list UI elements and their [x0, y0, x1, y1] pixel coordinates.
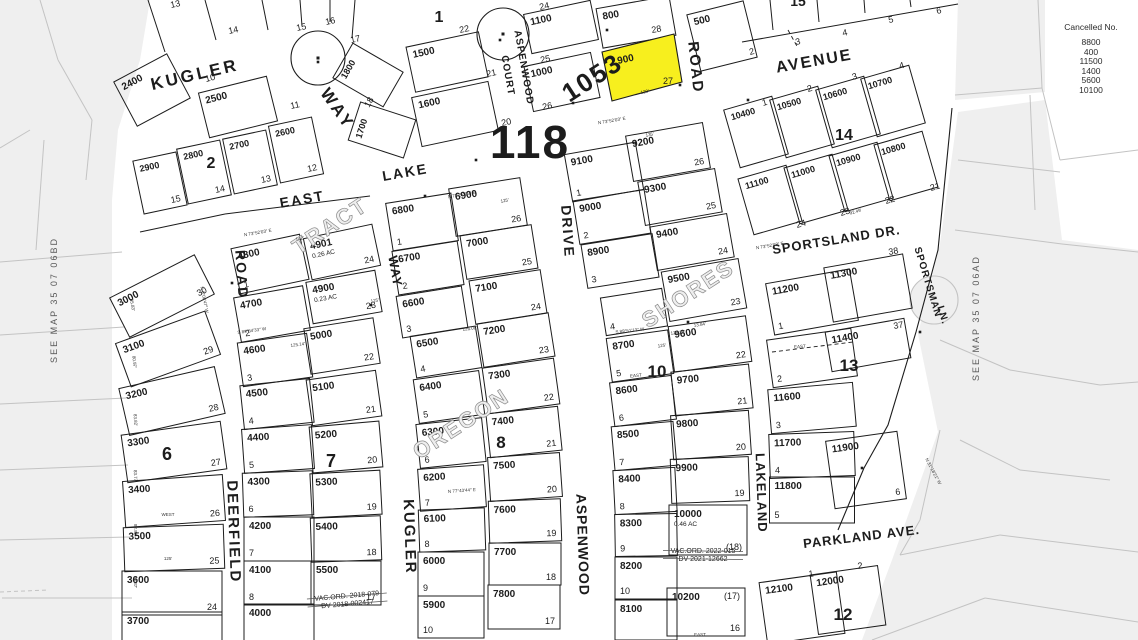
parcel-boundary — [469, 270, 547, 325]
lot-number: 4 — [775, 465, 780, 475]
parcel-7600[interactable]: 760019 — [488, 499, 561, 543]
bearing-label: N 73°52'03″ E — [598, 116, 626, 126]
survey-point-dot — [231, 282, 234, 285]
parcel-4200[interactable]: 42007 — [244, 517, 314, 561]
lot-number: 9 — [620, 543, 625, 553]
parcel-number: 9700 — [676, 373, 700, 386]
survey-point-dot — [606, 29, 609, 32]
lot-number: 27 — [663, 76, 673, 86]
parcel-9900[interactable]: 990019 — [670, 457, 749, 504]
strike-line — [663, 559, 743, 560]
lot-number: 15 — [170, 193, 182, 205]
lot-number: 16 — [730, 623, 740, 633]
survey-point-dot — [317, 57, 320, 60]
lot-number: 1 — [575, 187, 582, 198]
boundary-line — [770, 0, 773, 30]
bearing-label: 125' — [500, 197, 509, 203]
parcel-number: 6600 — [402, 296, 426, 310]
parcel-boundary — [306, 370, 382, 425]
lot-number: 10 — [620, 586, 630, 596]
boundary-line — [864, 0, 865, 13]
parcel-number: 1600 — [417, 96, 441, 111]
parcel-1100[interactable]: 1100 — [524, 0, 599, 53]
parcel-6000[interactable]: 60009 — [418, 552, 484, 596]
lot-number: 13 — [169, 0, 181, 10]
boundary-line — [205, 0, 216, 40]
parcel-number: 9900 — [675, 462, 698, 474]
bearing-label: WEST — [162, 512, 175, 517]
parcel-number: 5200 — [314, 429, 338, 442]
survey-point-dot — [502, 33, 505, 36]
lot-number: 3 — [247, 372, 253, 383]
lot-number: 22 — [735, 349, 746, 360]
street-label-avenue: AVENUE — [775, 46, 854, 76]
lot-number: 9 — [423, 583, 428, 593]
parcel-number: 2900 — [139, 160, 161, 174]
parcel-number: 7400 — [491, 415, 515, 428]
street-label-lakeland: LAKELAND — [753, 453, 771, 533]
parcel-1700[interactable]: 1700 — [348, 102, 416, 158]
parcel-number: 3000 — [116, 289, 141, 309]
parcel-number: 8700 — [612, 339, 636, 353]
parcel-number: 2800 — [182, 148, 204, 162]
parcel-number: 12100 — [765, 582, 795, 597]
parcel-number: 4600 — [243, 343, 267, 357]
street-label-drive: DRIVE — [558, 205, 578, 259]
parcel-4100[interactable]: 41008 — [244, 561, 314, 605]
survey-point-dot — [317, 61, 320, 64]
parcel-number: 1000 — [530, 65, 554, 80]
block-number: 6 — [162, 444, 172, 464]
lot-number: 11 — [289, 99, 300, 111]
parcel-number: 9400 — [655, 226, 679, 241]
parcel-number: 2700 — [228, 138, 250, 152]
lot-number: 10 — [423, 625, 433, 635]
bearing-label: 125.14' — [290, 341, 305, 348]
lot-number: 24 — [530, 301, 541, 312]
parcel-6500[interactable]: 65004 — [410, 326, 482, 378]
parcel-boundary — [198, 76, 277, 138]
block-number: 15 — [790, 0, 806, 9]
survey-point-dot — [475, 159, 478, 162]
parcel-number: 5300 — [315, 476, 338, 488]
block-number: 13 — [840, 356, 859, 375]
survey-point-dot — [679, 84, 682, 87]
parcel-number: 4200 — [249, 521, 272, 532]
parcel-number: 10700 — [867, 75, 894, 92]
parcel-boundary — [824, 254, 912, 322]
lot-number: 6 — [618, 412, 624, 423]
bearing-label: 126.08' — [462, 325, 477, 332]
parcel-boundary — [304, 318, 380, 374]
lot-number: 1 — [761, 97, 769, 108]
lot-number: 3 — [591, 274, 598, 285]
parcel-5400[interactable]: 540018 — [310, 516, 381, 562]
parcel-number: 2500 — [204, 90, 229, 106]
parcel-2500[interactable]: 2500 — [198, 76, 277, 138]
parcel-7000[interactable]: 700025 — [460, 225, 538, 280]
block-number: 1 — [435, 9, 444, 26]
parcel-number: 11200 — [771, 282, 800, 298]
lot-number: 22 — [884, 194, 896, 206]
lot-number: 7 — [619, 457, 625, 467]
lot-number: 25 — [539, 53, 551, 65]
lot-number: 1 — [808, 568, 814, 579]
parcel-number: 10000 — [674, 509, 702, 520]
lot-number: 19 — [546, 528, 556, 538]
lot-number: 24 — [538, 0, 550, 12]
boundary-line — [910, 0, 911, 7]
lot-number: 27 — [210, 457, 221, 468]
lot-number: 38 — [888, 245, 900, 257]
lot-number: 21 — [546, 438, 557, 449]
lot-number: 25 — [705, 200, 717, 212]
parcel-number: 3400 — [128, 484, 151, 497]
block-number: 7 — [326, 451, 336, 471]
lot-number: 2 — [806, 83, 814, 94]
parcel-number: 6500 — [416, 336, 440, 350]
lot-number: 18 — [546, 572, 556, 582]
parcel-area: 0.46 AC — [674, 521, 697, 528]
parcel-number: 9800 — [676, 418, 699, 431]
parcel-5000[interactable]: 500022 — [304, 318, 380, 374]
parcel-number: 6400 — [419, 380, 443, 394]
parcel-boundary — [668, 316, 752, 372]
lot-number: 4 — [898, 60, 906, 71]
parcel-boundary — [268, 117, 323, 183]
bearing-label: 83.82' — [133, 414, 139, 427]
parcel-number: 8400 — [618, 473, 641, 485]
parcel-number: 7000 — [466, 236, 490, 250]
parcel-boundary — [626, 123, 711, 182]
lot-number: 21 — [929, 181, 941, 193]
lot-number: 6 — [895, 486, 901, 497]
lot-number: 24 — [717, 245, 729, 257]
survey-point-dot — [572, 102, 575, 105]
street-label-road: ROAD — [684, 41, 706, 95]
lot-number: 5 — [775, 510, 780, 520]
parcel-number: 11100 — [744, 175, 770, 191]
lot-number: 24 — [207, 602, 217, 612]
parcel-5100[interactable]: 510021 — [306, 370, 382, 425]
lot-number: 4 — [248, 416, 254, 426]
parcel-3000[interactable]: 300030 — [110, 255, 215, 337]
survey-point-dot — [499, 39, 502, 42]
parcel-number: 10200 — [672, 592, 700, 603]
lot-number: 21 — [737, 395, 748, 406]
lot-number: 7 — [425, 498, 431, 508]
bearing-label: 82.87' — [133, 524, 138, 536]
street-label-way: WAY — [316, 84, 358, 133]
lot-number: 20 — [547, 484, 558, 495]
lot-number: 22 — [363, 351, 374, 362]
street-label-kugler: KUGLER — [149, 55, 241, 94]
parcel-number: 10600 — [822, 86, 849, 103]
parcel-number: 5100 — [312, 380, 336, 394]
parcel-2700[interactable]: 270013 — [223, 130, 278, 194]
lot-number: 1 — [396, 236, 403, 247]
lot-number: 26 — [210, 508, 221, 519]
parcel-number: 7800 — [493, 589, 516, 600]
lot-number: 3 — [775, 420, 781, 430]
cancelled-number: 10100 — [1048, 86, 1134, 96]
parcel-number: 9100 — [570, 154, 594, 169]
plat-map-stage: 3000303100293200283300273400263500253600… — [0, 0, 1138, 640]
lot-number: 1 — [777, 320, 784, 331]
lot-number: 28 — [208, 402, 220, 414]
parcel-7800[interactable]: 780017 — [488, 585, 560, 629]
parcel-number: 10800 — [880, 141, 907, 158]
parcel-number: 1100 — [529, 13, 553, 28]
bearing-label: EAST — [694, 632, 706, 637]
lot-number: 6 — [248, 504, 253, 514]
parcel-number: 10500 — [776, 96, 803, 113]
lot-number: 22 — [543, 392, 554, 403]
cancelled-list: Cancelled No. 8800400115001400560010100 — [1048, 22, 1134, 95]
parcel-6100[interactable]: 61008 — [418, 508, 485, 552]
lot-number: (17) — [724, 591, 740, 601]
parcel-boundary — [309, 421, 383, 473]
parcel-4000[interactable]: 4000 — [244, 604, 314, 640]
survey-point-dot — [747, 99, 750, 102]
parcel-number: 5500 — [316, 565, 339, 576]
parcel-8100[interactable]: 8100 — [615, 600, 677, 640]
parcel-9200[interactable]: 920026 — [626, 123, 711, 182]
parcel-number: 8300 — [620, 518, 643, 529]
parcel-number: 800 — [602, 9, 621, 23]
lot-number: 3 — [794, 36, 801, 47]
survey-point-dot — [919, 331, 922, 334]
lot-number: 2 — [857, 560, 863, 571]
block-number: 12 — [834, 605, 853, 624]
lot-number: 25 — [209, 555, 219, 565]
parcel-1500[interactable]: 1500 — [406, 32, 488, 92]
parcel-3700[interactable]: 370023 — [122, 612, 222, 640]
bearing-label: EAST — [794, 344, 806, 350]
boundary-line — [352, 0, 355, 38]
parcel-9700[interactable]: 970021 — [671, 364, 753, 416]
block-number: 10 — [648, 362, 667, 381]
parcel-number: 5000 — [309, 328, 333, 342]
lot-number: 19 — [734, 488, 744, 498]
parcel-7700[interactable]: 770018 — [489, 543, 561, 585]
parcel-number: 6000 — [423, 556, 446, 567]
parcel-number: 11700 — [774, 437, 802, 449]
street-label-kugler: KUGLER — [400, 499, 420, 575]
parcel-number: 9000 — [579, 201, 603, 215]
lot-number: 17 — [349, 33, 361, 45]
parcel-11900[interactable]: 119006 — [826, 431, 907, 508]
lot-number: 8 — [424, 539, 429, 549]
street-label-aspenwood: ASPENWOOD — [573, 493, 593, 596]
adjacent-area-fill — [862, 100, 1138, 640]
boundary-line — [742, 4, 958, 42]
parcel-number: 10400 — [730, 106, 757, 123]
lot-number: 24 — [363, 254, 375, 266]
street-label-east: EAST — [278, 187, 325, 211]
survey-point-dot — [861, 467, 864, 470]
lot-number: 5 — [616, 368, 622, 379]
survey-point-dot — [687, 321, 690, 324]
parcel-number: 5900 — [423, 600, 446, 611]
parcel-number: 6100 — [423, 513, 446, 525]
parcel-number: 9300 — [643, 181, 667, 196]
parcel-2600[interactable]: 260012 — [268, 117, 323, 183]
parcel-3400[interactable]: 340026 — [123, 475, 226, 528]
lot-number: 25 — [521, 256, 532, 267]
lot-number: 20 — [736, 442, 747, 453]
lot-number: 8 — [620, 501, 626, 511]
parcel-number: 8500 — [617, 428, 641, 441]
parcel-8300[interactable]: 83009 — [615, 513, 678, 556]
bearing-label: 85.83' — [129, 298, 136, 311]
survey-point-dot — [424, 195, 427, 198]
lot-number: 18 — [362, 95, 376, 109]
parcel-number: 11300 — [829, 266, 858, 282]
parcel-number: 5400 — [315, 521, 338, 533]
parcel-number: 10900 — [835, 152, 862, 169]
parcel-number: 4000 — [249, 608, 272, 619]
parcel-number: 7700 — [494, 547, 517, 558]
parcel-number: 4300 — [247, 476, 270, 488]
parcel-9600[interactable]: 960022 — [668, 316, 752, 372]
parcel-number: 3700 — [127, 616, 150, 627]
parcel-number: 3300 — [127, 435, 151, 449]
parcel-boundary — [671, 364, 753, 416]
parcel-number: 11600 — [773, 391, 802, 404]
parcel-number: 500 — [693, 13, 712, 28]
boundary-line — [148, 0, 165, 52]
lot-number: 12 — [306, 162, 318, 174]
adjacent-parcel-line — [1060, 150, 1138, 160]
lot-number: 2 — [776, 373, 782, 384]
boundary-line — [140, 214, 225, 232]
parcel-number: 8100 — [620, 604, 643, 615]
parcel-9800[interactable]: 980020 — [671, 410, 752, 459]
parcel-boundary — [123, 475, 226, 528]
parcel-number: 4400 — [247, 432, 270, 445]
parcel-number: 7300 — [488, 368, 512, 382]
parcel-4400[interactable]: 44005 — [242, 425, 315, 474]
lot-number: 22 — [458, 23, 470, 35]
parcel-5900[interactable]: 590010 — [418, 596, 484, 638]
parcel-number: 11800 — [775, 481, 803, 492]
parcel-8200[interactable]: 820010 — [615, 557, 677, 599]
lot-number: 29 — [202, 344, 215, 357]
parcel-11800[interactable]: 118005 — [770, 477, 855, 523]
parcel-7500[interactable]: 750020 — [488, 453, 563, 502]
lot-number: 14 — [227, 24, 239, 36]
lot-number: 5 — [249, 460, 255, 470]
parcel-number: 3500 — [128, 531, 151, 543]
parcel-number: 2600 — [274, 125, 296, 139]
lot-number: 16 — [324, 15, 336, 27]
lot-number: 18 — [366, 547, 376, 557]
parcel-boundary — [406, 32, 488, 92]
dimension-label: 120' — [640, 88, 649, 95]
parcel-8400[interactable]: 84008 — [613, 467, 677, 514]
survey-point-dot — [559, 129, 562, 132]
parcel-4500[interactable]: 45004 — [240, 378, 314, 429]
lot-number: 7 — [249, 548, 254, 558]
lot-number: 23 — [538, 344, 549, 355]
lot-number: 21 — [365, 404, 376, 415]
bearing-label: N 0°08'47″ W — [199, 286, 210, 314]
street-label-sportsland-dr-: SPORTSLAND DR. — [771, 222, 901, 257]
lot-number: 20 — [367, 454, 378, 465]
lot-number: 2 — [748, 46, 755, 57]
parcel-11300[interactable]: 11300 — [824, 254, 912, 322]
bearing-label: N 73°52'03″ E — [244, 228, 272, 238]
parcel-8600[interactable]: 86006 — [610, 375, 677, 426]
parcel-boundary — [223, 130, 278, 194]
parcel-1600[interactable]: 1600 — [412, 81, 499, 146]
bearing-label: N 77°43'44″ E — [448, 487, 476, 494]
street-label-deerfield: DEERFIELD — [223, 480, 244, 584]
block-number: 14 — [835, 127, 853, 144]
parcel-number: 8600 — [615, 384, 639, 398]
parcel-3100[interactable]: 310029 — [115, 311, 220, 387]
bearing-label: 92.49' — [849, 207, 862, 215]
bearing-label: 80.97' — [131, 356, 137, 369]
bearing-label: 83.87' — [133, 576, 138, 588]
parcel-number: 11900 — [831, 441, 860, 456]
parcel-5300[interactable]: 530019 — [310, 470, 382, 518]
boundary-line — [817, 0, 819, 22]
parcel-number: 4500 — [245, 387, 269, 400]
parcel-8500[interactable]: 85007 — [611, 421, 677, 470]
parcel-number: 7500 — [493, 460, 516, 473]
map-number-label: 118 — [490, 116, 570, 168]
lot-number: 37 — [893, 319, 905, 331]
parcel-number: 6800 — [391, 203, 415, 217]
lot-number: 26 — [541, 100, 553, 112]
lot-number: 26 — [510, 213, 521, 224]
parcel-boundary — [460, 225, 538, 280]
lot-number: 4 — [420, 363, 427, 374]
adjacent-area-fill — [955, 0, 1045, 100]
parcel-number: 1500 — [412, 45, 436, 60]
street-label-road: ROAD — [232, 250, 251, 300]
block-number: 2 — [207, 155, 216, 172]
parcel-number: 3100 — [122, 338, 147, 356]
parcel-number: 12000 — [816, 574, 846, 589]
lot-number: 17 — [545, 616, 555, 626]
parcel-boundary — [768, 382, 857, 433]
parcel-10200[interactable]: 1020016(17) — [667, 588, 745, 636]
boundary-line — [262, 0, 268, 30]
cancelled-numbers: 8800400115001400560010100 — [1048, 38, 1134, 95]
parcel-number: 8200 — [620, 561, 643, 572]
parcel-4300[interactable]: 43006 — [242, 471, 313, 517]
parcel-number: 8900 — [587, 245, 611, 259]
parcel-7100[interactable]: 710024 — [469, 270, 547, 325]
street-label-lake: LAKE — [381, 160, 429, 184]
lot-number: 21 — [485, 67, 497, 79]
cancelled-title: Cancelled No. — [1048, 22, 1134, 32]
lot-number: 26 — [693, 156, 705, 168]
lot-number: 3 — [406, 323, 413, 334]
parcel-11600[interactable]: 116003 — [768, 382, 857, 433]
see-map-reference: SEE MAP 35 07 06AD — [971, 255, 981, 381]
parcel-boundary — [671, 410, 752, 459]
parcel-number: 3200 — [125, 386, 150, 402]
parcel-number: 6200 — [423, 471, 446, 484]
lot-number: 15 — [295, 21, 307, 33]
lot-number: 2 — [583, 230, 590, 241]
lot-number: 8 — [249, 592, 254, 602]
parcel-5200[interactable]: 520020 — [309, 421, 383, 473]
